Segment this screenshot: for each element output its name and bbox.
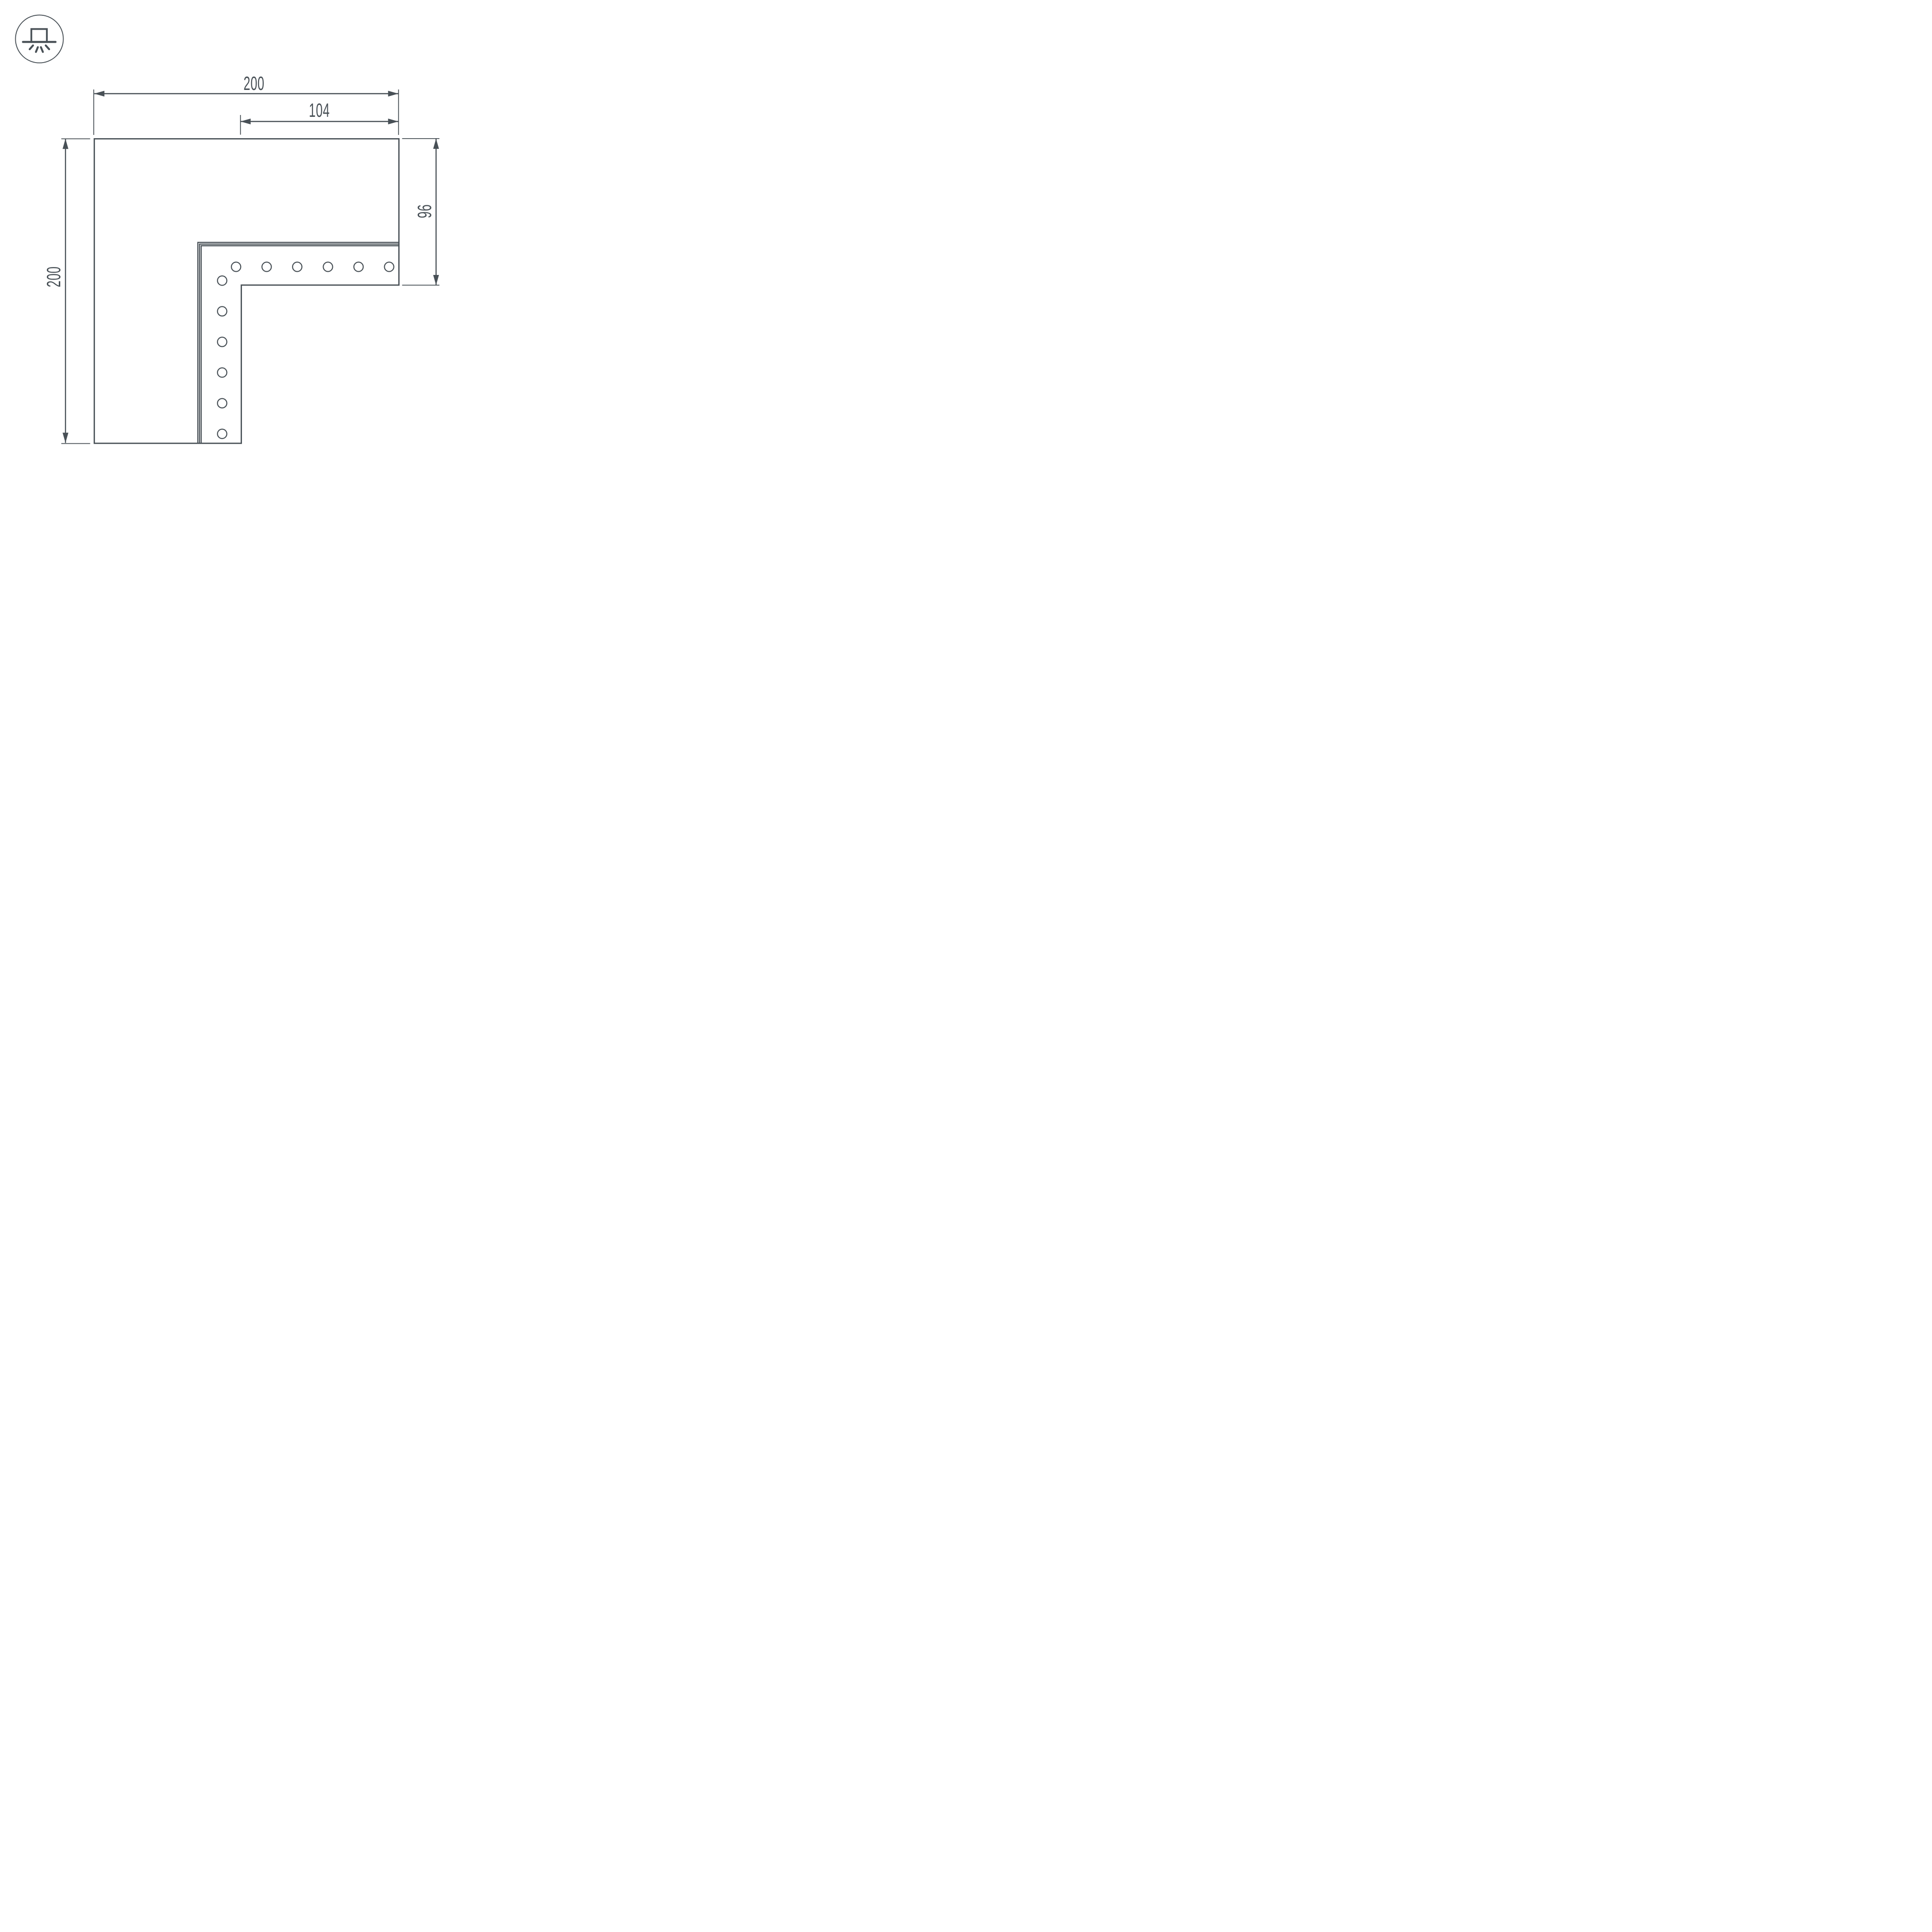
drawing-svg: 200 104 200 96 bbox=[0, 0, 483, 483]
icon-circle bbox=[15, 15, 63, 63]
dimension-label-left-height: 200 bbox=[43, 266, 65, 287]
arrowhead-right bbox=[388, 91, 398, 97]
arrowhead-bottom bbox=[433, 275, 439, 285]
arrowhead-top bbox=[433, 139, 439, 149]
hole bbox=[217, 306, 227, 316]
hole bbox=[231, 262, 241, 271]
hole bbox=[217, 399, 227, 408]
dimension-label-right-height: 96 bbox=[414, 204, 436, 218]
seam-triple-line bbox=[198, 242, 400, 444]
technical-drawing-page: 200 104 200 96 bbox=[0, 0, 483, 483]
connector-body bbox=[94, 139, 400, 444]
dimension-label-top-width: 200 bbox=[243, 73, 264, 95]
dimension-left-height: 200 bbox=[43, 139, 90, 443]
hole bbox=[262, 262, 271, 271]
arrowhead-left bbox=[241, 119, 251, 125]
dimension-right-height: 96 bbox=[402, 139, 440, 285]
surface-mount-light-icon bbox=[15, 15, 63, 63]
hole bbox=[217, 368, 227, 377]
hole bbox=[292, 262, 302, 271]
hole bbox=[217, 276, 227, 285]
arrowhead-left bbox=[94, 91, 104, 97]
arrowhead-top bbox=[63, 139, 69, 149]
hole bbox=[323, 262, 332, 271]
hole bbox=[354, 262, 363, 271]
icon-fixture-box bbox=[32, 29, 47, 42]
hole bbox=[217, 429, 227, 439]
dimension-top-width: 200 bbox=[94, 73, 399, 135]
hole bbox=[384, 262, 394, 271]
body-outline bbox=[94, 139, 399, 443]
icon-light-rays bbox=[30, 45, 49, 52]
dimension-inner-width: 104 bbox=[241, 100, 399, 135]
arrowhead-right bbox=[388, 119, 398, 125]
hole-pattern bbox=[217, 262, 394, 438]
hole bbox=[217, 337, 227, 346]
dimension-label-inner-width: 104 bbox=[309, 100, 330, 121]
arrowhead-bottom bbox=[63, 433, 69, 443]
